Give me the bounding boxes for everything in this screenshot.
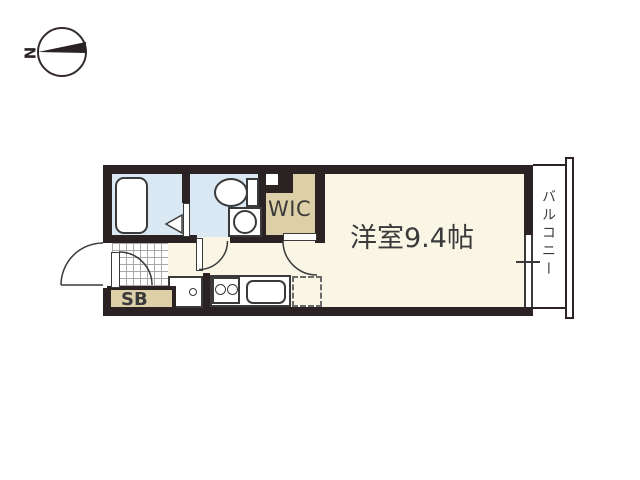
bathroom-door-swing-icon — [166, 215, 182, 233]
floorplan-canvas: N バルコニー SB — [0, 0, 640, 480]
wic-door-arc — [283, 241, 317, 275]
wic-label: WIC — [268, 199, 311, 220]
entrance-door-arc — [119, 252, 152, 285]
door-swing-overlay — [0, 0, 640, 480]
main-room-label: 洋室9.4帖 — [350, 225, 474, 252]
washroom-door-arc — [199, 241, 228, 270]
entrance-door-exterior-arc — [61, 243, 103, 285]
